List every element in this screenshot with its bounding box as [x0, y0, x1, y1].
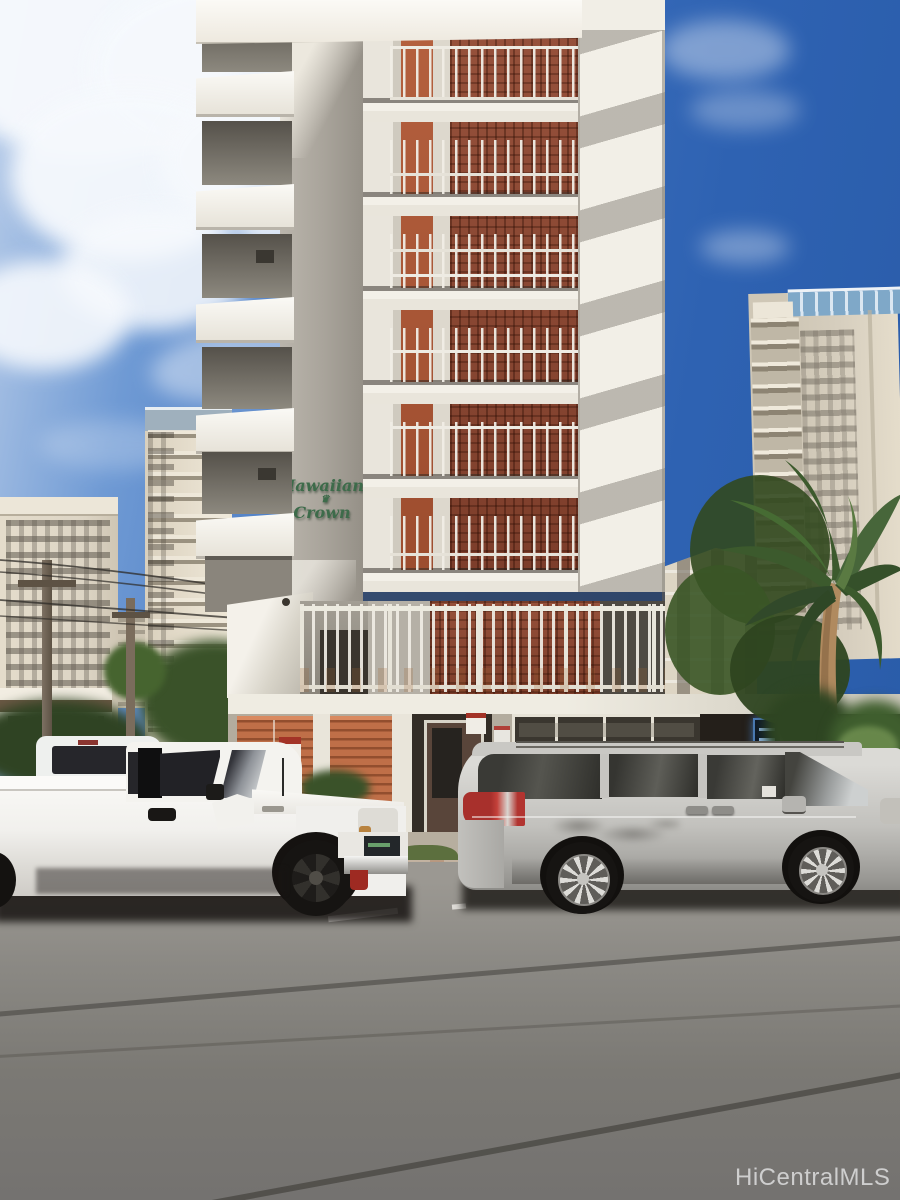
building-sign-line2: Crown — [293, 505, 350, 521]
van-pillar — [600, 754, 609, 798]
side-wall-top — [578, 0, 665, 30]
palm-tree — [650, 400, 900, 745]
van-roof-rail — [516, 746, 844, 748]
wire-anchor — [282, 598, 290, 606]
van-door-handle — [712, 806, 734, 814]
cloud — [660, 20, 790, 80]
van-rear-bumper — [458, 820, 504, 888]
walkway-railing — [300, 604, 665, 692]
balcony-floors — [363, 28, 665, 592]
truck-door-handle — [148, 808, 176, 821]
building-sign: Hawaiian ♛ Crown — [282, 478, 362, 521]
railing-rust — [300, 668, 665, 692]
van-wheel-cap — [816, 864, 828, 876]
left-balcony-recess — [202, 234, 292, 298]
van-rear-wheel — [546, 842, 618, 914]
van-pillar — [698, 754, 707, 798]
plate-characters — [368, 843, 390, 847]
left-balcony-recess — [202, 347, 292, 409]
van-mirror — [782, 796, 806, 814]
truck-rocker-shadow — [36, 868, 286, 894]
walkway-soffit — [363, 592, 665, 601]
photo-canvas: Hawaiian ♛ Crown — [0, 0, 900, 1200]
left-balcony-recess — [202, 452, 292, 514]
van-headlight-sliver — [880, 798, 900, 824]
van-wheel-cap — [577, 873, 589, 885]
truck-mud-flap — [350, 870, 368, 890]
van-body-crease — [472, 816, 856, 818]
top-parapet — [196, 0, 582, 44]
van-door-handle — [686, 806, 708, 814]
van-front-wheel — [788, 836, 854, 902]
railing-top-rail — [300, 606, 665, 611]
van-sliding-glass — [609, 754, 698, 797]
watermark: HiCentralMLS — [735, 1164, 890, 1192]
left-balcony-recess — [202, 121, 292, 185]
truck-b-pillar — [138, 748, 162, 798]
van-window-sticker — [762, 786, 776, 797]
van-roof-rail — [516, 741, 844, 743]
background-tower-left-roof — [0, 497, 118, 516]
entry-sign — [466, 713, 486, 734]
truck-wheel-cap — [309, 871, 323, 885]
truck-badge — [262, 806, 284, 812]
building-sign-line1: Hawaiian — [280, 478, 364, 494]
truck-antenna — [282, 758, 284, 796]
cloud — [700, 230, 790, 264]
tower-right-parapet — [753, 301, 793, 318]
cloud — [690, 90, 800, 130]
tower-right-rooftop-glass — [788, 287, 900, 317]
background-truck-brake-light — [78, 740, 98, 745]
truck-mirror-base — [206, 784, 224, 800]
truck-front-plate — [364, 836, 400, 856]
balcony-window — [256, 250, 274, 263]
balcony-window — [258, 468, 276, 480]
